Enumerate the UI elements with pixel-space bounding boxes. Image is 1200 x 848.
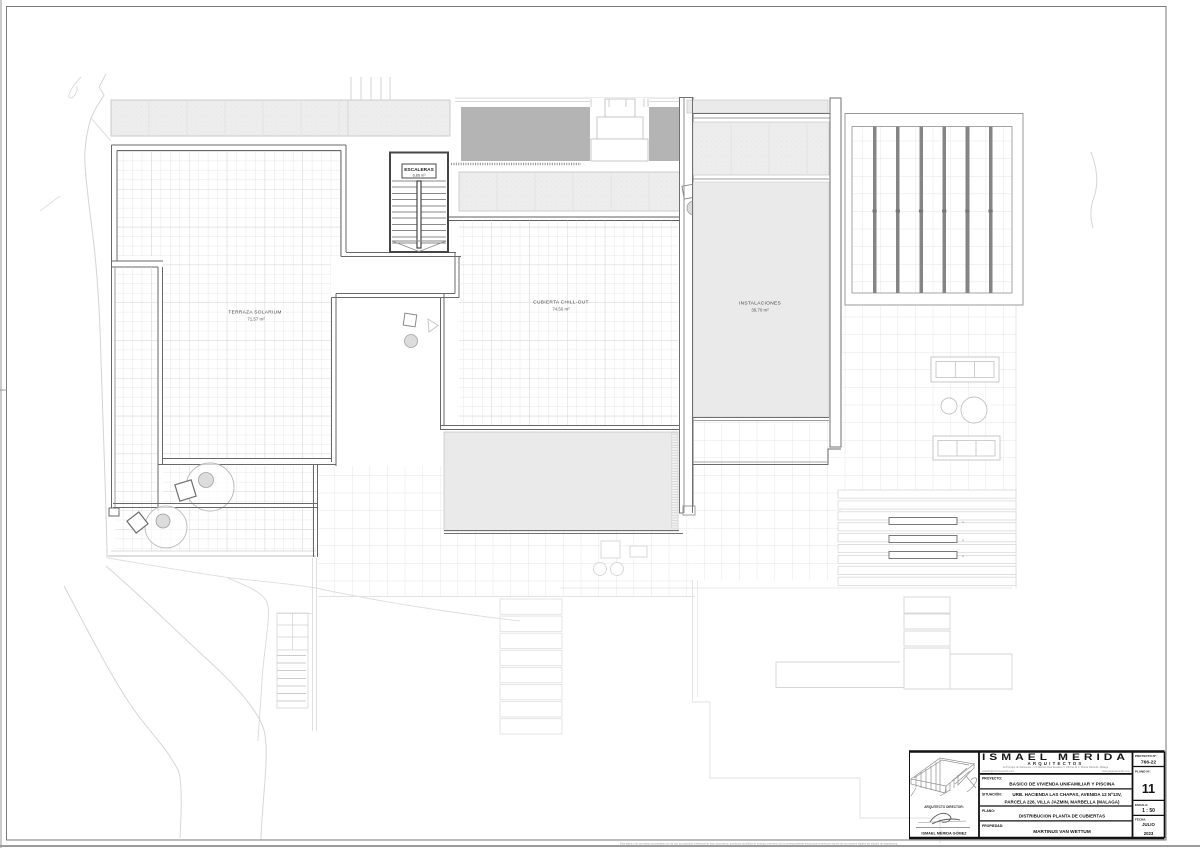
svg-text:MARTINUS VAN WETTUM: MARTINUS VAN WETTUM: [1033, 829, 1091, 834]
svg-text:71,57 m²: 71,57 m²: [247, 317, 265, 322]
svg-text:CUBIERTA CHILL-OUT: CUBIERTA CHILL-OUT: [533, 300, 589, 306]
svg-text:PLANO:: PLANO:: [982, 809, 995, 813]
svg-text:BASICO DE VIVIENDA UNIFAMILIAR: BASICO DE VIVIENDA UNIFAMILIAR Y PISCINA: [1009, 782, 1115, 787]
svg-text:PLANO Nº:: PLANO Nº:: [1135, 769, 1151, 773]
svg-text:ESCALA:: ESCALA:: [1135, 803, 1148, 807]
svg-text:Este plano y de sus obras conc: Este plano y de sus obras concretadas so…: [620, 842, 898, 846]
svg-text:ISMAEL MÉRIDA GÓMEZ: ISMAEL MÉRIDA GÓMEZ: [921, 831, 967, 836]
svg-text:766-22: 766-22: [1141, 760, 1157, 766]
svg-text:www.paginaestudio.com: www.paginaestudio.com: [1102, 769, 1130, 773]
svg-text:11: 11: [1142, 782, 1155, 796]
svg-text:ARQUITECTO DIRECTOR:: ARQUITECTO DIRECTOR:: [924, 805, 964, 809]
svg-text:TERRAZA SOLARIUM: TERRAZA SOLARIUM: [228, 310, 281, 316]
svg-text:URB. HACIENDA LAS CHAPAS, AVEN: URB. HACIENDA LAS CHAPAS, AVENIDA 12 Nº1…: [1012, 792, 1121, 797]
svg-text:PROPIEDAD:: PROPIEDAD:: [982, 824, 1003, 828]
svg-text:2023: 2023: [1144, 831, 1154, 836]
svg-text:ARQUITECTOS: ARQUITECTOS: [1027, 761, 1083, 766]
svg-text:1 : 50: 1 : 50: [1142, 808, 1155, 814]
svg-text:INSTALACIONES: INSTALACIONES: [739, 301, 781, 307]
svg-text:SITUACIÓN:: SITUACIÓN:: [982, 791, 1002, 796]
svg-text:74,56 m²: 74,56 m²: [552, 307, 570, 312]
svg-text:DISTRIBUCION PLANTA DE CUBIERT: DISTRIBUCION PLANTA DE CUBIERTAS: [1019, 814, 1105, 819]
svg-text:Av.Principe de Salmonete - urb: Av.Principe de Salmonete - urb.Maríbel.R…: [1003, 765, 1109, 769]
svg-text:JULIO: JULIO: [1142, 822, 1155, 827]
svg-text:FECHA:: FECHA:: [1135, 817, 1146, 821]
svg-text:39,70 m²: 39,70 m²: [751, 308, 769, 313]
svg-text:PROYECTO:: PROYECTO:: [982, 776, 1002, 780]
svg-text:estudio@correoestudio.com: estudio@correoestudio.com: [982, 769, 1014, 773]
svg-text:6,86 m²: 6,86 m²: [413, 174, 427, 178]
svg-text:PROYECTO Nº:: PROYECTO Nº:: [1135, 754, 1157, 758]
svg-text:ESCALERAS: ESCALERAS: [404, 167, 434, 173]
svg-text:PARCELA 226, VILLA JAZMIN, MAR: PARCELA 226, VILLA JAZMIN, MARBELLA (MAL…: [1005, 800, 1120, 805]
